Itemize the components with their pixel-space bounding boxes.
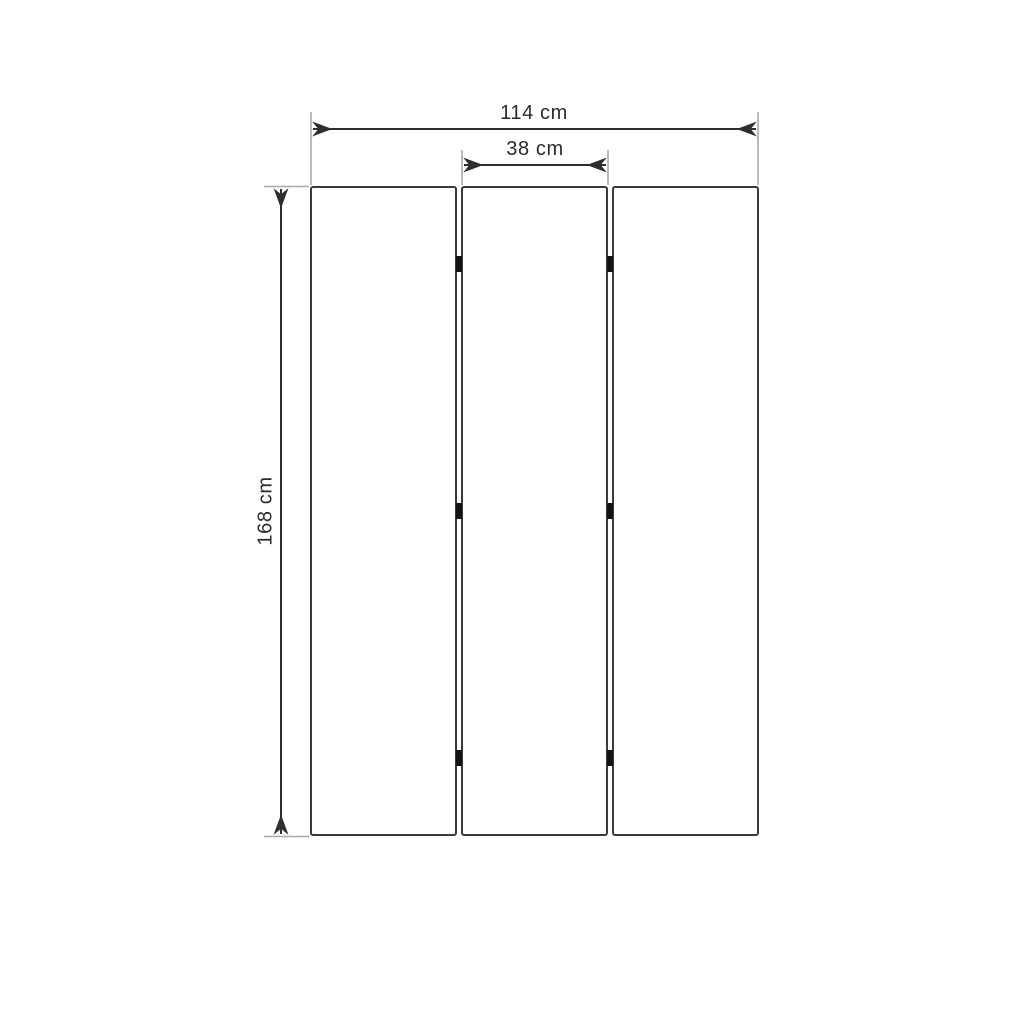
height-label: 168 cm: [255, 476, 278, 545]
diagram-canvas: 114 cm 38 cm 168 cm: [0, 0, 1024, 1024]
total-width-label: 114 cm: [434, 102, 634, 125]
panel-width-label: 38 cm: [435, 138, 635, 161]
